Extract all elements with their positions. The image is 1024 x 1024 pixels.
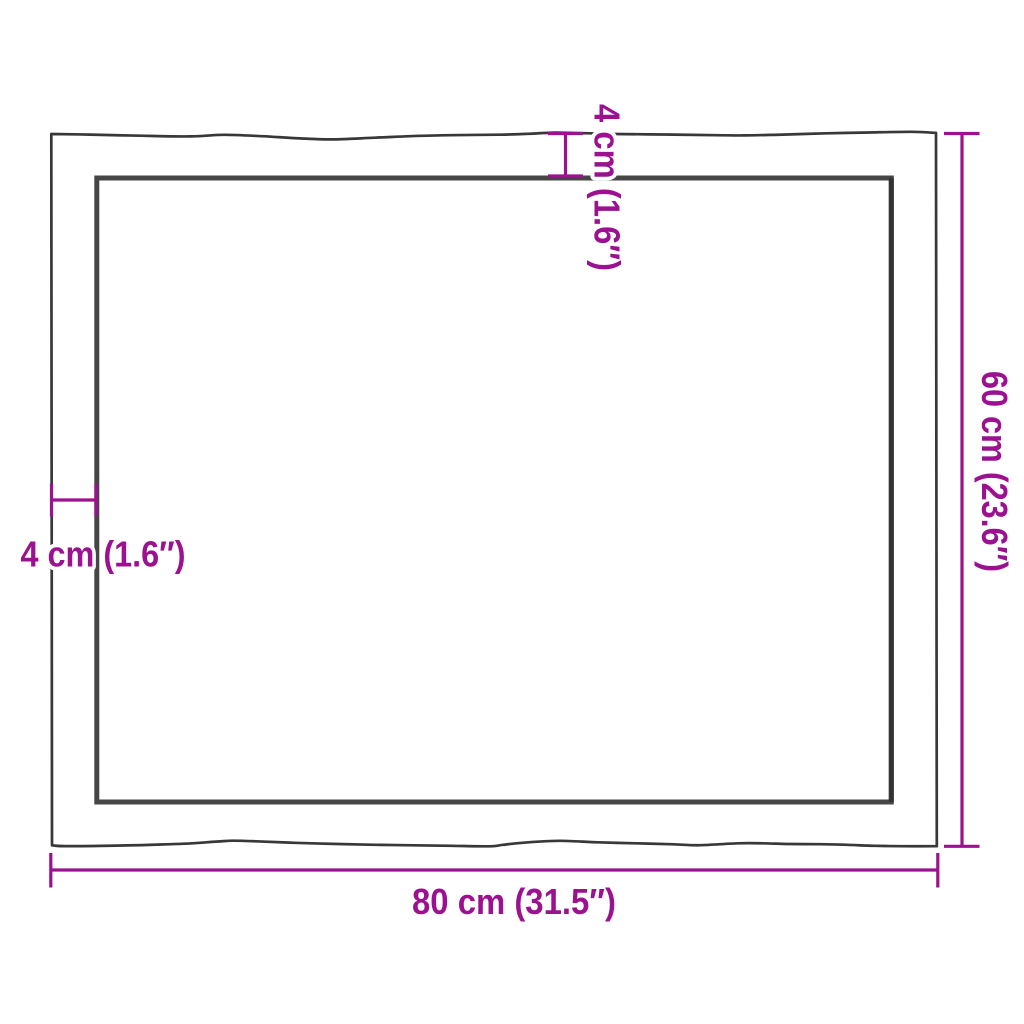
svg-text:60 cm (23.6″): 60 cm (23.6″): [974, 371, 1015, 572]
svg-text:4 cm (1.6″): 4 cm (1.6″): [21, 534, 186, 575]
svg-text:80 cm (31.5″): 80 cm (31.5″): [412, 881, 616, 922]
svg-text:4 cm (1.6″): 4 cm (1.6″): [587, 104, 628, 271]
